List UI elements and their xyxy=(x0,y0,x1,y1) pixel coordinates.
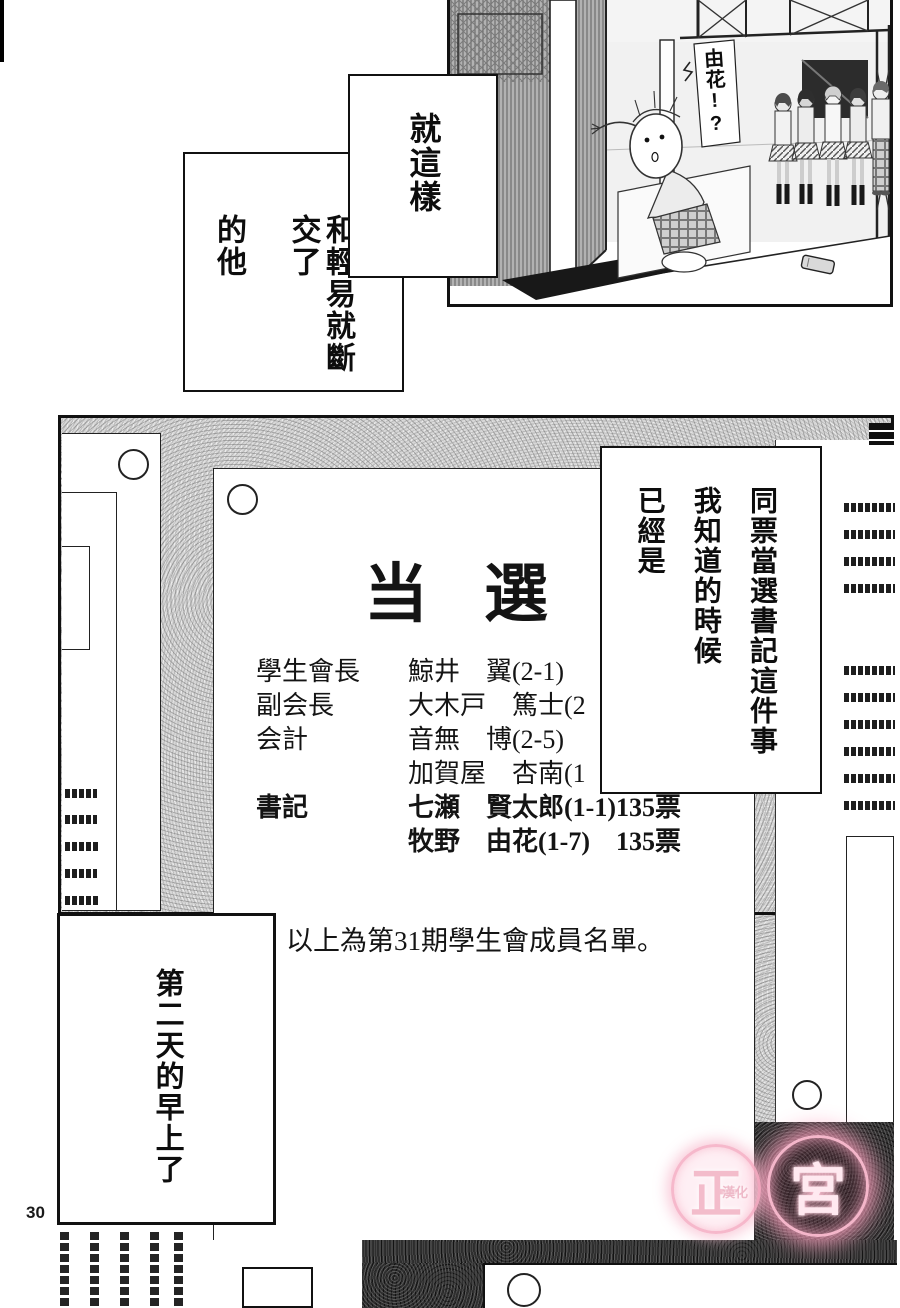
roster-row: 牧野 由花(1-7) 135票 xyxy=(256,825,681,859)
roster-role: 書記 xyxy=(256,791,408,825)
roster-role xyxy=(256,825,408,859)
speech-text: 我知道的時候 xyxy=(690,486,722,666)
board-shadow-lower xyxy=(362,1263,483,1308)
print-column xyxy=(174,1232,183,1308)
print-column xyxy=(90,1232,99,1308)
roster-name: 鯨井 翼(2-1) xyxy=(408,655,564,689)
print-line xyxy=(65,789,97,798)
print-column xyxy=(120,1232,129,1308)
paper-inner-frame xyxy=(846,836,894,1134)
print-column xyxy=(60,1232,69,1308)
speech-text: 已經是 xyxy=(633,486,665,576)
roster-role xyxy=(256,757,408,791)
print-line xyxy=(844,530,895,539)
print-line xyxy=(844,774,895,783)
print-line xyxy=(844,666,895,675)
roster-name: 音無 博(2-5) xyxy=(408,723,564,757)
narration-text: 的他 xyxy=(211,214,246,278)
manga-page: 由花!? 和輕易就斷交了 的他 就這樣 当選 學生會長 鯨井 翼(2-1) 副会… xyxy=(0,0,900,1308)
pin-icon xyxy=(118,449,149,480)
print-line xyxy=(65,869,97,878)
bottom-small-frame xyxy=(242,1267,313,1308)
pin-icon xyxy=(227,484,258,515)
board-shadow-band xyxy=(362,1240,897,1263)
top-panel-hallway: 由花!? xyxy=(447,0,893,307)
speech-bubble-tie-vote: 同票當選書記這件事 我知道的時候 已經是 xyxy=(600,446,822,794)
print-line xyxy=(844,720,895,729)
watermark-subtext: 漢化 xyxy=(722,1182,748,1201)
print-line xyxy=(65,842,98,851)
print-line xyxy=(844,503,895,512)
print-line xyxy=(65,815,97,824)
dark-label-block xyxy=(869,423,894,445)
poster-footer: 以上為第31期學生會成員名單。 xyxy=(286,919,664,958)
print-line xyxy=(844,693,895,702)
speech-text: 同票當選書記這件事 xyxy=(746,486,778,756)
poster-title: 当選 xyxy=(364,543,604,635)
roster-role: 副会長 xyxy=(256,689,408,723)
pin-icon xyxy=(792,1080,822,1110)
scan-edge-mark xyxy=(0,0,4,62)
page-number: 30 xyxy=(26,1203,45,1223)
print-line xyxy=(844,747,895,756)
pin-icon xyxy=(507,1273,541,1307)
print-line xyxy=(65,896,99,905)
caption-box-morning: 第二天的早上了 xyxy=(57,913,276,1225)
watermark-badge-2: 宮 xyxy=(767,1135,869,1237)
paper-inner-frame xyxy=(62,546,90,650)
print-line xyxy=(844,557,895,566)
roster-role: 學生會長 xyxy=(256,655,408,689)
bottom-paper xyxy=(483,1263,897,1308)
print-line xyxy=(844,801,895,810)
pinned-paper-left xyxy=(62,433,161,911)
print-column xyxy=(150,1232,159,1308)
print-line xyxy=(844,584,895,593)
roster-row: 書記 七瀬 賢太郎(1-1)135票 xyxy=(256,791,681,825)
narration-text: 和輕易就斷交了 xyxy=(285,214,354,390)
narration-text: 就這樣 xyxy=(405,112,442,276)
roster-name: 牧野 由花(1-7) 135票 xyxy=(408,825,681,859)
roster-name: 加賀屋 杏南(1 xyxy=(408,757,586,791)
hallway-artwork xyxy=(450,0,890,301)
roster-name: 七瀬 賢太郎(1-1)135票 xyxy=(408,791,681,825)
roster-name: 大木戸 篤士(2 xyxy=(408,689,586,723)
narration-bubble-1: 就這樣 xyxy=(348,74,498,278)
caption-text: 第二天的早上了 xyxy=(150,968,183,1222)
roster-role: 会計 xyxy=(256,723,408,757)
